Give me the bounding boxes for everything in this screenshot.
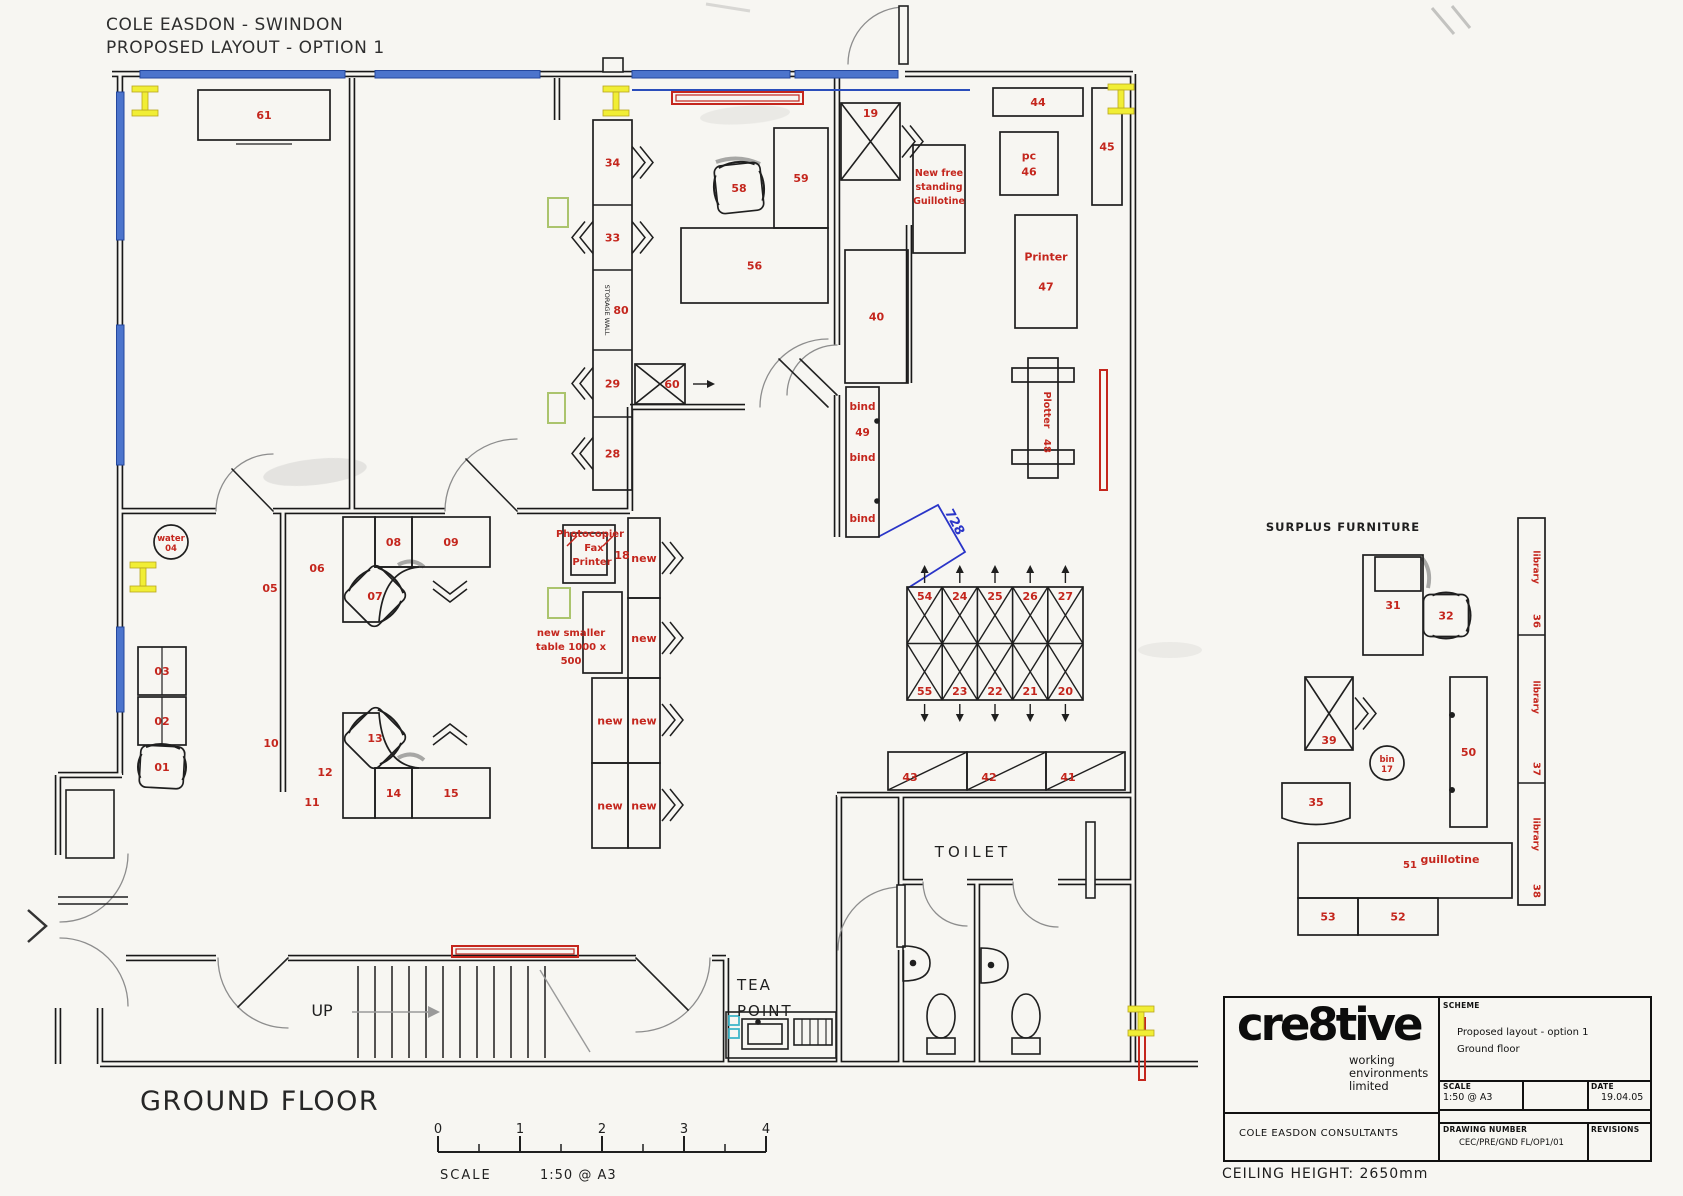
plan-text: 25: [987, 590, 1002, 603]
furniture-chev: [662, 789, 683, 821]
plan-label: Printer: [572, 557, 611, 568]
furniture-02: 02: [138, 697, 186, 745]
plan-label: 2: [598, 1122, 606, 1137]
plan-label: 1:50 @ A3: [540, 1168, 617, 1183]
furniture-61: 61: [198, 90, 330, 140]
toilet-cistern: [1012, 1038, 1040, 1054]
plan-label: SURPLUS FURNITURE: [1266, 520, 1420, 534]
furniture-chev: [433, 581, 467, 602]
plan-label: UP: [311, 1001, 333, 1020]
furniture-redrect: [1100, 370, 1107, 490]
window-strips: [117, 71, 971, 713]
scale-bar: [438, 1136, 766, 1152]
date-label: DATE: [1591, 1082, 1614, 1091]
plan-text: 24: [952, 590, 968, 603]
furniture-chev: [433, 724, 467, 745]
wash-basin: [903, 946, 930, 981]
drawing-number-value: CEC/PRE/GND FL/OP1/01: [1459, 1138, 1564, 1148]
plan-label: TEA: [736, 976, 772, 994]
plan-text: new: [631, 632, 656, 645]
plan-label: 06: [309, 562, 325, 575]
date-value: 19.04.05: [1601, 1092, 1643, 1103]
plan-text: bind: [849, 401, 875, 413]
plan-label: guillotine: [1421, 853, 1480, 866]
plan-text: 44: [1030, 96, 1046, 109]
furniture-ibeam: [130, 562, 156, 592]
furniture-14: 14: [375, 768, 412, 818]
furniture-greenrect: [548, 198, 568, 227]
furniture-greenrect: [548, 393, 565, 423]
furniture-chev: [662, 542, 683, 574]
drawing-sheet: 613433STORAGE WALL802928585956601940bind…: [0, 0, 1683, 1196]
plan-label: 728: [941, 507, 967, 538]
plan-text: pc: [1022, 150, 1036, 163]
plan-text: 55: [917, 685, 932, 698]
plan-text: 38: [1531, 884, 1542, 898]
plan-text: 58: [731, 182, 746, 195]
furniture-new: new: [628, 763, 660, 848]
furniture-rect: pc46: [1000, 132, 1058, 195]
plan-text: 52: [1390, 911, 1405, 924]
furniture-35: 35: [1282, 783, 1350, 825]
stair-direction-arrow: [428, 1006, 440, 1018]
wall-box: [603, 58, 623, 72]
company-logo-subtext: working environments limited: [1349, 1054, 1428, 1093]
furniture-44: 44: [993, 88, 1083, 116]
furniture-shelfrow: 5352: [1298, 898, 1438, 935]
plan-text: 01: [154, 761, 169, 774]
furniture-ibeam: [603, 86, 629, 116]
plan-text: 39: [1321, 734, 1336, 747]
plan-text: 15: [443, 787, 458, 800]
plan-text: library: [1531, 818, 1541, 852]
revisions-label: REVISIONS: [1591, 1125, 1639, 1134]
plan-text: 49: [855, 427, 870, 439]
furniture-stack: 3433STORAGE WALL802928: [572, 120, 653, 490]
furniture-chev: [662, 704, 683, 736]
plan-doors: [60, 6, 1095, 1032]
plan-text: 27: [1058, 590, 1073, 603]
company-logo: cre8tive: [1237, 998, 1421, 1051]
scan-smudges: [262, 4, 1470, 658]
plan-text: 20: [1058, 685, 1074, 698]
toilet-pan: [927, 994, 955, 1038]
plan-text: 34: [605, 157, 621, 170]
furniture-shelfrow: 434241: [888, 752, 1125, 790]
plan-label: 10: [263, 737, 279, 750]
entry-arrow-icon: [28, 910, 46, 942]
plan-text: 21: [1023, 685, 1038, 698]
furniture-48: Plotter48: [1012, 358, 1074, 478]
client-name: COLE EASDON CONSULTANTS: [1239, 1128, 1398, 1139]
threshold: [58, 897, 128, 904]
furniture-45: 45: [1092, 88, 1122, 205]
wash-basin: [981, 948, 1008, 983]
plan-text: 23: [952, 685, 967, 698]
furniture-new: new: [628, 598, 660, 678]
furniture-01: 01: [137, 743, 187, 789]
plan-text: 22: [987, 685, 1002, 698]
plan-text: 80: [613, 304, 629, 317]
plan-text: Plotter: [1041, 392, 1052, 429]
plan-text: bind: [849, 513, 875, 525]
plan-label: 05: [262, 582, 277, 595]
furniture-circle: water04: [154, 525, 188, 559]
furniture-60: 60: [635, 364, 715, 404]
plan-text: water: [157, 534, 185, 544]
plan-text: library: [1531, 550, 1541, 584]
plan-text: 48: [1041, 439, 1052, 453]
plan-text: new: [597, 800, 622, 813]
plan-text: 54: [917, 590, 933, 603]
furniture-50: 50: [1449, 677, 1487, 827]
plan-text: 42: [981, 771, 996, 784]
title-line1: COLE EASDON - SWINDON: [106, 15, 343, 35]
plan-text: new: [597, 715, 622, 728]
plan-text: 35: [1308, 796, 1323, 809]
stairs: [352, 966, 590, 1058]
door-leaf: [899, 6, 908, 64]
plan-text: STORAGE WALL: [603, 285, 611, 336]
furniture-58: 58: [711, 160, 766, 215]
plan-label: TOILET: [934, 843, 1011, 861]
scale-value: 1:50 @ A3: [1443, 1092, 1492, 1103]
furniture-new: new: [628, 518, 660, 598]
floor-label: GROUND FLOOR: [140, 1086, 379, 1117]
plan-text: 46: [1021, 166, 1037, 179]
furniture-rect: Printer47: [1015, 215, 1077, 328]
furniture-grid: 54552423252226212720: [907, 565, 1083, 722]
plan-label: Fax: [584, 543, 604, 554]
plan-text: 53: [1320, 911, 1335, 924]
furniture-15: 15: [412, 768, 490, 818]
plan-text: 56: [747, 260, 763, 273]
ceiling-height-note: CEILING HEIGHT: 2650mm: [1222, 1166, 1428, 1182]
door-leaf: [1086, 822, 1095, 898]
plan-text: 59: [793, 172, 808, 185]
plan-text: bin: [1379, 755, 1394, 765]
furniture-greenrect: [548, 588, 570, 618]
plan-text: 43: [902, 771, 917, 784]
furniture-cyanrect: [729, 1029, 739, 1038]
plan-text: 29: [605, 378, 620, 391]
plan-text: 04: [165, 544, 177, 554]
furniture-circle: bin17: [1370, 746, 1404, 780]
plan-text: 37: [1531, 762, 1542, 776]
plan-text: 02: [154, 715, 169, 728]
furniture-08: 08: [375, 517, 412, 567]
plan-label: New free: [915, 168, 963, 179]
drawing-number-label: DRAWING NUMBER: [1443, 1125, 1527, 1134]
plan-text: 31: [1385, 599, 1400, 612]
plan-text: 33: [605, 232, 620, 245]
furniture-56: 56: [681, 228, 828, 303]
plan-text: 19: [863, 107, 878, 120]
furniture-chev: [662, 622, 683, 654]
scheme-value: Proposed layout - option 1 Ground floor: [1457, 1024, 1589, 1058]
sanitary-fixtures: [903, 946, 1040, 1054]
plan-text: new: [631, 715, 656, 728]
plan-text: new: [631, 800, 656, 813]
furniture-vstack: library36library37library38: [1518, 518, 1545, 905]
plan-text: 50: [1461, 746, 1477, 759]
stair-rail: [540, 970, 590, 1052]
furniture-59: 59: [774, 128, 828, 228]
plan-label: SCALE: [440, 1168, 492, 1183]
toilet-pan: [1012, 994, 1040, 1038]
scheme-label: SCHEME: [1443, 1001, 1480, 1010]
plan-text: Printer: [1024, 251, 1068, 264]
plan-text: 41: [1060, 771, 1075, 784]
plan-label: 12: [317, 766, 332, 779]
plan-text: 03: [154, 665, 169, 678]
furniture-31: 31: [1363, 555, 1423, 655]
plan-label: new smaller: [537, 628, 605, 639]
furniture-new: new: [592, 763, 628, 848]
door-leaf: [897, 885, 905, 947]
plan-label: 51: [1403, 860, 1417, 871]
furniture-07: 07: [340, 560, 411, 631]
plan-text: library: [1531, 680, 1541, 714]
furniture-new: new: [592, 678, 628, 763]
title-block: cre8tive working environments limited CO…: [1223, 996, 1652, 1162]
plan-label: 4: [762, 1122, 770, 1137]
plan-text: 17: [1381, 765, 1393, 775]
title-line2: PROPOSED LAYOUT - OPTION 1: [106, 38, 385, 58]
plan-label: 3: [680, 1122, 688, 1137]
plan-text: 45: [1099, 141, 1114, 154]
toilet-cistern: [927, 1038, 955, 1054]
plan-text: 47: [1038, 281, 1053, 294]
plan-label: 18: [614, 549, 629, 562]
plan-label: 11: [304, 796, 319, 809]
plan-text: 09: [443, 536, 458, 549]
furniture-32: 32: [1424, 593, 1471, 639]
plan-label: 1: [516, 1122, 524, 1137]
plan-text: 40: [869, 311, 885, 324]
furniture-40: 40: [845, 250, 908, 383]
furniture-09: 09: [412, 517, 490, 567]
plan-label: POINT: [737, 1002, 793, 1020]
furniture-bind: bind49bindbind: [846, 387, 880, 537]
plan-text: bind: [849, 452, 875, 464]
furniture-19: 19: [841, 103, 923, 180]
plan-text: 36: [1531, 614, 1542, 628]
plan-text: new: [631, 552, 656, 565]
plan-text: 60: [664, 378, 680, 391]
furniture-ibeam: [132, 86, 158, 116]
furniture-39: 39: [1305, 677, 1376, 750]
plan-text: 61: [256, 109, 271, 122]
furniture-redbar: [672, 92, 803, 104]
plan-label: Photocopier: [556, 529, 624, 540]
scale-label: SCALE: [1443, 1082, 1471, 1091]
plan-text: 32: [1438, 610, 1453, 623]
plan-text: 08: [386, 536, 401, 549]
plan-text: 28: [605, 448, 620, 461]
furniture-03: 03: [138, 647, 186, 695]
plan-text: 14: [386, 787, 402, 800]
plan-text: 13: [367, 732, 382, 745]
plan-label: standing: [916, 182, 963, 193]
plan-label: table 1000 x: [536, 642, 607, 653]
plan-text: 26: [1023, 590, 1039, 603]
plan-text: 07: [367, 590, 382, 603]
furniture-new: new: [628, 678, 660, 763]
plan-label: Guillotine: [913, 196, 965, 207]
drawing-title: COLE EASDON - SWINDONPROPOSED LAYOUT - O…: [106, 14, 385, 60]
plan-label: 0: [434, 1122, 442, 1137]
plan-label: 500: [561, 656, 582, 667]
lobby-vestibule: [66, 790, 114, 858]
